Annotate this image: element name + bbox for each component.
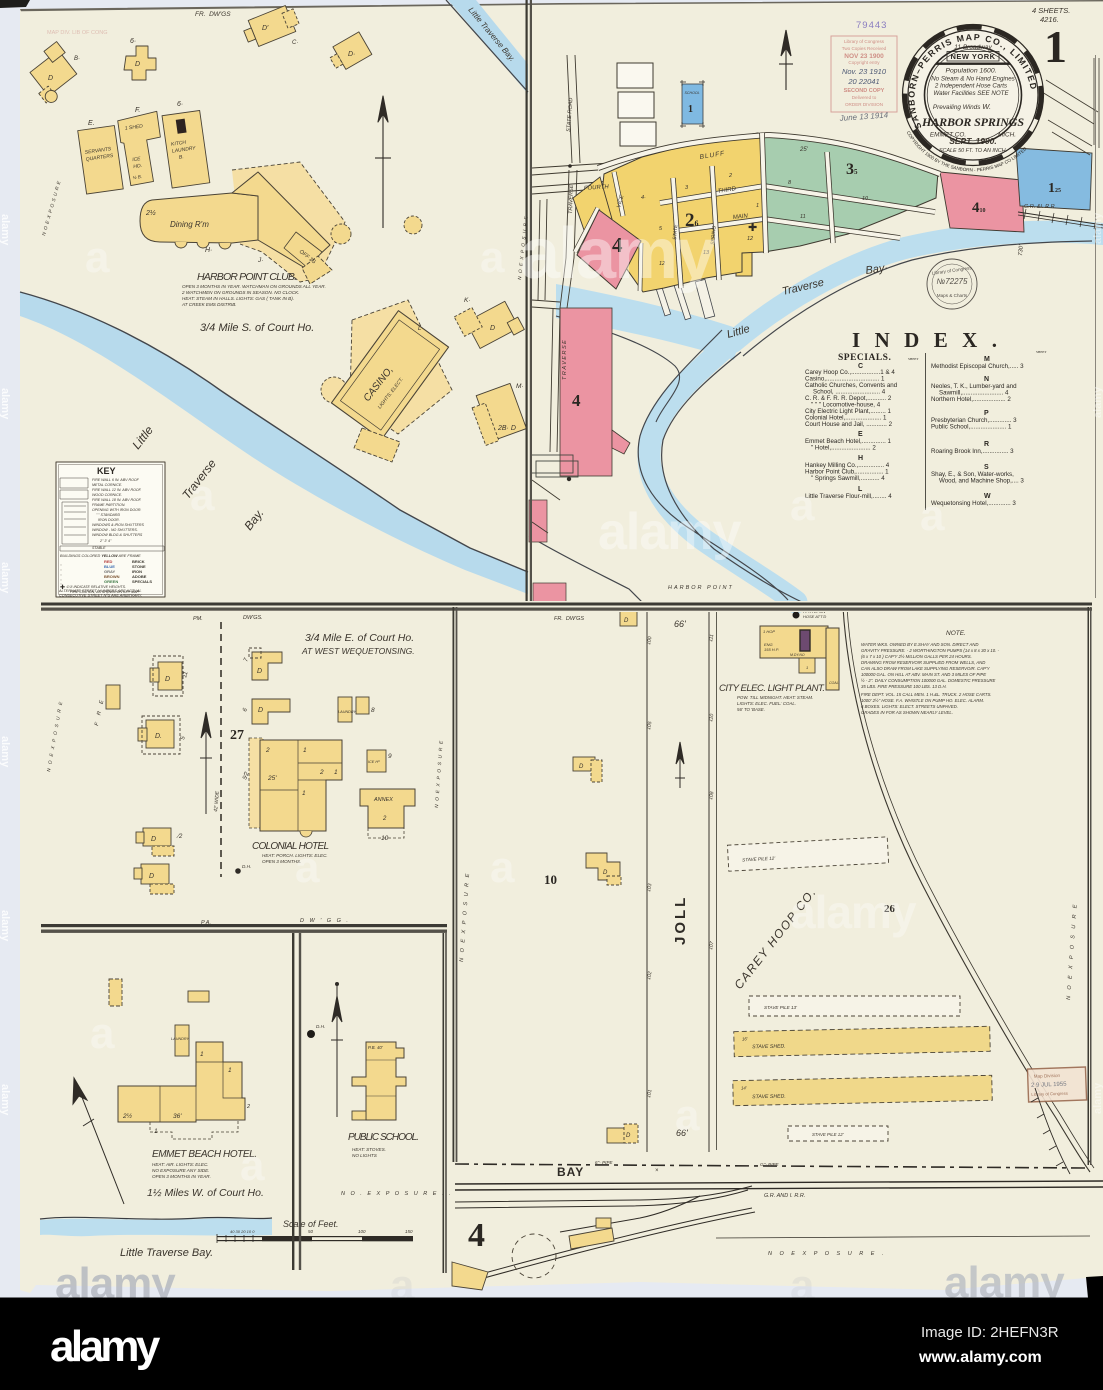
svg-text:2: 2	[382, 816, 387, 822]
svg-text:50: 50	[308, 1229, 314, 1234]
svg-text:6 BOXES. LIGHTS: ELECT. STRE: 6 BOXES. LIGHTS: ELECT. STREETS UNPAVED.	[861, 704, 958, 709]
svg-text:BAY: BAY	[557, 1165, 584, 1179]
svg-text:HOSE ATT'D: HOSE ATT'D	[803, 614, 826, 619]
svg-text:POW. TILL MIDNIGHT. HEAT: STE: POW. TILL MIDNIGHT. HEAT: STEAM.	[737, 695, 813, 700]
svg-text:11: 11	[800, 214, 806, 220]
svg-text:FR. DW'GS: FR. DW'GS	[554, 616, 584, 622]
svg-text:B·: B·	[74, 56, 80, 62]
svg-text:SCALE 50 FT. TO AN INCH.: SCALE 50 FT. TO AN INCH.	[939, 148, 1007, 154]
svg-text:155 H.P.: 155 H.P.	[764, 647, 779, 652]
svg-text:4: 4	[468, 1217, 485, 1254]
svg-text:,,: ,,	[60, 572, 62, 576]
svg-text:CITY ELEC. LIGHT PLANT.: CITY ELEC. LIGHT PLANT.	[719, 683, 825, 694]
svg-text:KEY: KEY	[97, 466, 116, 476]
svg-text:36': 36'	[173, 1113, 182, 1120]
svg-text:FIRE WALL 12 IN. ABV ROOF.: FIRE WALL 12 IN. ABV ROOF.	[92, 488, 142, 492]
svg-text:HO.: HO.	[133, 163, 143, 170]
svg-text:40 30 20 10 0: 40 30 20 10 0	[230, 1229, 255, 1234]
svg-text:Dining R'm: Dining R'm	[170, 220, 209, 229]
svg-text:66': 66'	[674, 619, 686, 629]
svg-text:M·: M·	[516, 383, 524, 390]
svg-text:DRAWING FROM RESERVOIR SUPP: DRAWING FROM RESERVOIR SUPPLIED FROM WEL…	[861, 660, 985, 665]
svg-text:2B· D: 2B· D	[497, 425, 516, 432]
svg-text:alamy: alamy	[520, 214, 716, 294]
svg-text:1: 1	[756, 203, 759, 209]
svg-text:PM.: PM.	[193, 616, 203, 622]
svg-text:SPECIALS.: SPECIALS.	[838, 353, 891, 363]
svg-text:SPECIALS: SPECIALS	[132, 579, 152, 584]
svg-text:16': 16'	[742, 1036, 748, 1041]
svg-text:STAVE PILE 13': STAVE PILE 13'	[764, 1005, 797, 1010]
svg-text:SCHOOL: SCHOOL	[685, 91, 700, 95]
svg-text:D: D	[626, 1133, 631, 1139]
svg-text:GREEN: GREEN	[104, 579, 118, 584]
svg-text:HEAT: STOVES.: HEAT: STOVES.	[352, 1147, 386, 1152]
svg-text:6''· PIPE: 6''· PIPE	[595, 1160, 614, 1165]
svg-text:a: a	[90, 1009, 115, 1058]
svg-text:11 Broadway: 11 Broadway	[954, 44, 992, 51]
svg-text:25': 25'	[267, 775, 277, 782]
svg-text:FR. DW'GS: FR. DW'GS	[195, 11, 231, 18]
svg-text:STAVE SHED.: STAVE SHED.	[752, 1094, 786, 1101]
svg-text:OPENING WITH IRON DOOR.: OPENING WITH IRON DOOR.	[92, 508, 142, 512]
svg-text:H·: H·	[205, 247, 212, 254]
svg-text:ANNEX: ANNEX	[373, 797, 393, 803]
svg-text:2: 2	[246, 1104, 250, 1110]
svg-text:alamy: alamy	[0, 1084, 11, 1116]
svg-text:alamy: alamy	[790, 886, 917, 938]
svg-text:NEW YORK: NEW YORK	[950, 52, 995, 61]
svg-text:D: D	[603, 870, 608, 876]
svg-text:100000 GAL. ON HILL AT ABV. MA: 100000 GAL. ON HILL AT ABV. MAIN ST. AND…	[861, 672, 986, 677]
svg-text:2: 2	[265, 747, 270, 754]
svg-text:a: a	[480, 233, 505, 282]
svg-text:10: 10	[862, 196, 869, 202]
svg-text:1: 1	[806, 665, 808, 670]
svg-text:25': 25'	[799, 147, 809, 153]
svg-text:MAP DIV. LIB OF CONG: MAP DIV. LIB OF CONG	[47, 30, 108, 36]
svg-text:2 WATCHMEN ON GROUNDS IN SEASO: 2 WATCHMEN ON GROUNDS IN SEASON. NO CLOC…	[181, 290, 300, 295]
svg-text:,,: ,,	[60, 562, 62, 566]
svg-text:D.H.: D.H.	[242, 864, 251, 869]
svg-text:No Steam & No Hand Engines: No Steam & No Hand Engines	[931, 76, 1015, 83]
svg-text:(6 x 7 x 10 ) CAP'Y 2½ MILLI: (6 x 7 x 10 ) CAP'Y 2½ MILLION GALLS PER…	[861, 654, 972, 659]
svg-text:AT CREEK EMS DISTRIB.: AT CREEK EMS DISTRIB.	[181, 302, 237, 307]
svg-text:½ - 2''. DAILY CONSUMPTION 1: ½ - 2''. DAILY CONSUMPTION 100000 GAL. D…	[861, 678, 996, 683]
svg-text:1: 1	[200, 1051, 204, 1058]
svg-text:a: a	[675, 1091, 700, 1140]
svg-text:Maps & Charts: Maps & Charts	[937, 293, 968, 298]
svg-text:1: 1	[1044, 21, 1067, 72]
svg-text:STAVE PILE 12': STAVE PILE 12'	[812, 1132, 844, 1137]
svg-text:Roaring Brook Inn,............: Roaring Brook Inn,............... 3	[931, 448, 1014, 455]
svg-text:a: a	[295, 843, 320, 892]
svg-text:G''· PIPE: G''· PIPE	[760, 1162, 780, 1167]
svg-text:G.R. AND I. R.R.: G.R. AND I. R.R.	[764, 1193, 805, 1199]
svg-text:MICH.: MICH.	[998, 132, 1016, 139]
svg-text:D: D	[490, 325, 495, 332]
svg-text:H: H	[858, 455, 863, 462]
svg-text:alamy: alamy	[0, 214, 11, 246]
svg-text:Court House and Jail, ........: Court House and Jail, ............ 2	[805, 421, 893, 428]
svg-text:www.alamy.com: www.alamy.com	[918, 1349, 1042, 1366]
svg-text:TRAVERSE: TRAVERSE	[562, 339, 568, 380]
svg-text:LAUNDRY: LAUNDRY	[171, 1037, 189, 1041]
svg-text:9: 9	[388, 753, 392, 760]
svg-text:Northern Hotel,...............: Northern Hotel,................... 2	[931, 396, 1011, 403]
svg-text:NO LIGHTS: NO LIGHTS	[352, 1153, 378, 1158]
svg-text:№72275: №72275	[937, 277, 968, 286]
svg-text:Scale of Feet.: Scale of Feet.	[283, 1219, 339, 1229]
svg-text:10: 10	[381, 835, 389, 842]
svg-text:6·: 6·	[130, 38, 136, 45]
svg-text:N O E X P O S U R E .: N O E X P O S U R E .	[768, 1251, 886, 1257]
svg-text:NO EXPOSURE ANY SIDE.: NO EXPOSURE ANY SIDE.	[152, 1168, 209, 1173]
svg-text:E.: E.	[88, 120, 95, 127]
svg-text:NOV 23 1900: NOV 23 1900	[844, 53, 884, 60]
svg-text:Little Traverse Flour-mill,...: Little Traverse Flour-mill,........ 4	[805, 493, 892, 500]
svg-text:150: 150	[405, 1229, 413, 1234]
svg-text:ALTERNATE STREET NUMBERS ARE: ALTERNATE STREET NUMBERS ARE ACTUAL	[58, 589, 142, 593]
svg-text:N: N	[984, 376, 989, 383]
svg-text:IRON DOOR.: IRON DOOR.	[98, 518, 120, 522]
svg-text:35 LBS. FIRE PRESSURE 100 LB: 35 LBS. FIRE PRESSURE 100 LBS. 13 D.H.	[861, 684, 947, 689]
svg-text:D: D	[258, 707, 263, 714]
svg-text:6·: 6·	[177, 101, 183, 108]
svg-text:1: 1	[154, 1128, 158, 1135]
svg-text:alamy: alamy	[598, 503, 742, 561]
svg-text:" " STANDARD: " " STANDARD	[96, 513, 120, 517]
svg-text:SHEET: SHEET	[908, 357, 919, 361]
svg-text:56' TO 'BASE.: 56' TO 'BASE.	[737, 707, 765, 712]
svg-text:HEAT: STEAM IN HALLS. LIGHTS:: HEAT: STEAM IN HALLS. LIGHTS: GAS ( TANK…	[182, 296, 294, 301]
svg-text:FIRE WALL 6 IN. ABV ROOF: FIRE WALL 6 IN. ABV ROOF	[92, 478, 140, 482]
svg-text:WINDOW - NO SHUTTERS.: WINDOW - NO SHUTTERS.	[92, 528, 138, 532]
svg-text:BUILDINGS COLORED YELLOW ARE: BUILDINGS COLORED YELLOW ARE FRAME	[60, 554, 141, 558]
svg-text:D: D	[135, 61, 140, 68]
svg-text:4·: 4·	[641, 195, 646, 201]
svg-text:2½: 2½	[122, 1112, 133, 1120]
svg-text:HARBOR POINT CLUB.: HARBOR POINT CLUB.	[197, 271, 297, 283]
svg-text:14': 14'	[741, 1085, 747, 1090]
svg-text:Delivered to: Delivered to	[852, 95, 877, 100]
svg-text:730': 730'	[1018, 244, 1025, 256]
svg-text:Methodist Episcopal Church,...: Methodist Episcopal Church,..... 3	[931, 363, 1024, 370]
svg-text:D: D	[151, 836, 156, 843]
svg-text:CAN ALSO DRAW FROM LAKE SUPPL: CAN ALSO DRAW FROM LAKE SUPPLYING RESERV…	[861, 666, 991, 671]
svg-text:1: 1	[303, 747, 307, 754]
svg-text:TRAVERSE: TRAVERSE	[568, 184, 575, 214]
svg-text:Library of Congress: Library of Congress	[844, 39, 885, 44]
svg-text:P: P	[984, 410, 989, 417]
svg-text:a: a	[190, 471, 215, 520]
svg-text:a: a	[490, 843, 515, 892]
svg-text:G.R. &I. R.R.: G.R. &I. R.R.	[1024, 204, 1056, 210]
svg-text:D: D	[48, 75, 53, 82]
svg-text:WINDOW BLDG & SHUTTERS: WINDOW BLDG & SHUTTERS	[92, 533, 143, 537]
svg-text:Prevailing Winds W.: Prevailing Winds W.	[933, 102, 991, 111]
svg-text:D·: D·	[348, 51, 355, 58]
svg-text:FRAME PARTITION.: FRAME PARTITION.	[92, 503, 125, 507]
svg-text:alamy: alamy	[0, 910, 11, 942]
svg-text:4 SHEETS.: 4 SHEETS.	[1032, 6, 1070, 15]
svg-text:Water Facilities SEE NOTE: Water Facilities SEE NOTE	[933, 90, 1009, 97]
svg-text:R: R	[984, 441, 989, 448]
svg-text:D.H.: D.H.	[316, 1024, 325, 1029]
svg-text:a: a	[85, 233, 110, 282]
svg-text:M: M	[984, 356, 990, 363]
svg-text:Population 1600.: Population 1600.	[945, 68, 996, 75]
svg-text:L·: L·	[418, 326, 423, 332]
svg-text:Two Copies Received: Two Copies Received	[842, 46, 887, 51]
svg-text:2 Independent Hose Carts: 2 Independent Hose Carts	[934, 83, 1007, 90]
svg-text:Wood, and Machine Shop,.... 3: Wood, and Machine Shop,.... 3	[939, 478, 1024, 485]
svg-text:a: a	[240, 1141, 265, 1190]
svg-text:alamy: alamy	[0, 562, 11, 594]
svg-text:GRADES IN FOR AS SHOWN NE: GRADES IN FOR AS SHOWN NEARLY LEVEL.	[861, 710, 953, 715]
svg-text:STAVE SHED.: STAVE SHED.	[752, 1044, 786, 1051]
svg-text:1000' 2½'' HOSE. F.A. WHISTLE: 1000' 2½'' HOSE. F.A. WHISTLE ON PUMP HO…	[861, 698, 984, 703]
svg-text:LIGHTS: ELEC. FUEL: COAL.: LIGHTS: ELEC. FUEL: COAL.	[737, 701, 796, 706]
svg-text:alamy: alamy	[1092, 212, 1103, 244]
svg-text:D: D	[165, 676, 170, 683]
svg-text:DW'GS.: DW'GS.	[243, 615, 263, 621]
svg-text:D: D	[257, 668, 262, 675]
svg-text:D: D	[149, 873, 154, 880]
svg-text:D W ' G G .: D W ' G G .	[300, 918, 350, 924]
svg-text:METAL CORNICE.: METAL CORNICE.	[92, 483, 122, 487]
svg-text:D: D	[579, 764, 584, 770]
svg-text:NOTE.: NOTE.	[946, 630, 966, 637]
svg-text:ICE: ICE	[132, 156, 142, 163]
svg-text:" Springs Sawmill,........: " Springs Sawmill,........... 4	[811, 475, 885, 482]
svg-text:2 9 JUL 1955: 2 9 JUL 1955	[1031, 1082, 1067, 1089]
svg-text:2½: 2½	[145, 209, 156, 217]
svg-text:1 HOP: 1 HOP	[763, 629, 775, 634]
svg-text:Public School,................: Public School,..................... 1	[931, 424, 1012, 431]
svg-text:⁄2: ⁄2	[176, 834, 183, 840]
svg-text:×: ×	[655, 1168, 659, 1174]
svg-text:K·: K·	[464, 297, 471, 304]
svg-text:ICE Hº: ICE Hº	[368, 760, 380, 764]
svg-text:8: 8	[371, 707, 375, 714]
svg-text:L: L	[858, 486, 863, 493]
svg-text:1: 1	[228, 1067, 232, 1074]
svg-text:3/4 Mile E. of Court Ho.: 3/4 Mile E. of Court Ho.	[305, 632, 414, 644]
svg-text:" Hotel,.................: " Hotel,....................... 2	[811, 445, 876, 452]
svg-text:SECOND COPY: SECOND COPY	[844, 88, 885, 94]
svg-text:WINDOWS & IRON SHUTTERS: WINDOWS & IRON SHUTTERS	[92, 523, 145, 527]
svg-text:HARBOR SPRINGS: HARBOR SPRINGS	[921, 115, 1024, 129]
svg-text:S: S	[984, 464, 989, 471]
svg-text:D′: D′	[262, 25, 269, 32]
svg-text:C·: C·	[292, 40, 298, 46]
svg-text:79443: 79443	[856, 20, 887, 31]
svg-text:D.: D.	[155, 733, 162, 740]
svg-text:10: 10	[544, 872, 557, 887]
svg-text:Nov. 23 1910: Nov. 23 1910	[842, 67, 887, 76]
svg-text:12: 12	[747, 236, 753, 242]
svg-text:2: 2	[319, 769, 324, 776]
svg-text:COAL: COAL	[829, 681, 839, 685]
svg-text:100: 100	[358, 1229, 366, 1234]
svg-text:JOLL: JOLL	[672, 895, 689, 945]
svg-text:a: a	[920, 491, 945, 540]
svg-text:a: a	[790, 481, 815, 530]
svg-text:SEPT. 1900.: SEPT. 1900.	[949, 136, 997, 146]
svg-text:M.DY.NO: M.DY.NO	[790, 653, 805, 657]
svg-text:D: D	[624, 618, 629, 624]
svg-text:2'' 3' 4'': 2'' 3' 4''	[99, 539, 112, 543]
svg-text:FIRE DEPT. VOL. 15 CALL MEN.: FIRE DEPT. VOL. 15 CALL MEN. 1 H.&L. TRU…	[861, 692, 992, 697]
svg-text:Image ID: 2HEFN3R: Image ID: 2HEFN3R	[921, 1324, 1059, 1341]
svg-text:2: 2	[728, 173, 732, 179]
svg-text:alamy: alamy	[50, 1322, 161, 1371]
svg-text:FIRE WALL 18 IN. ABV ROOF.: FIRE WALL 18 IN. ABV ROOF.	[92, 498, 142, 502]
svg-text:W: W	[984, 493, 991, 500]
svg-text:E: E	[858, 431, 863, 438]
svg-text:27: 27	[230, 728, 244, 743]
svg-text:alamy: alamy	[0, 736, 11, 768]
svg-text:,,: ,,	[60, 567, 62, 571]
svg-text:HEAT: AIR. LIGHTS: ELEC.: HEAT: AIR. LIGHTS: ELEC.	[152, 1162, 209, 1167]
svg-text:J·: J·	[257, 257, 263, 264]
svg-text:GRAVITY PRESSURE. - 2 WORTHING: GRAVITY PRESSURE. - 2 WORTHINGTON PUMPS …	[861, 648, 1000, 653]
svg-text:ORDER DIVISION: ORDER DIVISION	[845, 102, 883, 107]
svg-text:HARBOR POINT: HARBOR POINT	[668, 585, 734, 591]
svg-text:4: 4	[572, 391, 581, 410]
svg-text:Little Traverse Bay.: Little Traverse Bay.	[120, 1247, 213, 1259]
svg-text:WATER WKS. OWNED BY E.SHAY: WATER WKS. OWNED BY E.SHAY AND SON. DIRE…	[861, 642, 978, 647]
svg-text:STABLE: STABLE	[92, 546, 106, 550]
svg-text:alamy: alamy	[0, 388, 11, 420]
svg-text:WOOD CORNICE.: WOOD CORNICE.	[92, 493, 122, 497]
svg-text:P.B. 40': P.B. 40'	[368, 1045, 383, 1050]
svg-text:F.: F.	[135, 107, 140, 114]
svg-text:alamy: alamy	[1092, 386, 1103, 418]
svg-text:N O . E X P O S U R E . .: N O . E X P O S U R E . .	[341, 1191, 453, 1197]
svg-text:Map Division: Map Division	[1034, 1073, 1061, 1079]
svg-text:B.: B.	[179, 154, 185, 161]
svg-text:AT WEST WEQUETONSING.: AT WEST WEQUETONSING.	[301, 646, 415, 656]
svg-text:LAUNDRY: LAUNDRY	[338, 710, 356, 714]
svg-text:OPEN 3 MONTHS IN YEAR.: OPEN 3 MONTHS IN YEAR.	[152, 1174, 211, 1179]
svg-text:OPEN 3 MONTHS IN YEAR. WATCHM: OPEN 3 MONTHS IN YEAR. WATCHMAN ON GROUN…	[182, 284, 326, 289]
svg-text:3/4 Mile S. of Court Ho.: 3/4 Mile S. of Court Ho.	[200, 322, 314, 334]
svg-text:SHEET: SHEET	[1036, 350, 1047, 354]
svg-text:CONSECUTIVE STREET NºS ARE AR: CONSECUTIVE STREET NºS ARE ARBITRARY.	[59, 594, 142, 598]
svg-text:1: 1	[302, 790, 306, 797]
svg-text:1: 1	[688, 104, 693, 115]
svg-text:alamy: alamy	[1092, 1082, 1103, 1114]
svg-text:✚: ✚	[748, 222, 757, 234]
svg-text:Copyright entry: Copyright entry	[848, 60, 880, 65]
svg-text:PUBLIC SCHOOL.: PUBLIC SCHOOL.	[348, 1132, 419, 1143]
svg-text:20 22041: 20 22041	[847, 77, 879, 86]
svg-text:1: 1	[334, 769, 338, 776]
